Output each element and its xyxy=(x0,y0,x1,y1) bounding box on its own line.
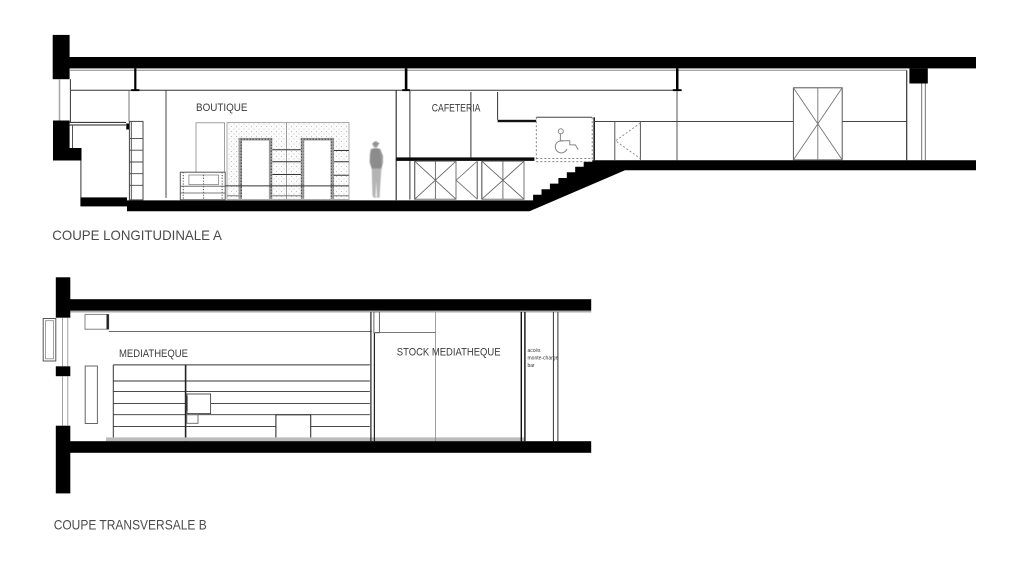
svg-text:COUPE LONGITUDINALE A: COUPE LONGITUDINALE A xyxy=(52,228,222,243)
svg-text:MEDIATHEQUE: MEDIATHEQUE xyxy=(119,348,188,360)
svg-text:STOCK MEDIATHEQUE: STOCK MEDIATHEQUE xyxy=(397,347,501,359)
svg-text:BOUTIQUE: BOUTIQUE xyxy=(196,102,248,114)
svg-text:bar: bar xyxy=(528,363,536,369)
svg-text:accès: accès xyxy=(528,348,542,354)
svg-text:CAFETERIA: CAFETERIA xyxy=(432,103,481,115)
svg-text:COUPE TRANSVERSALE B: COUPE TRANSVERSALE B xyxy=(54,517,207,533)
svg-text:monte-charge: monte-charge xyxy=(528,356,559,362)
